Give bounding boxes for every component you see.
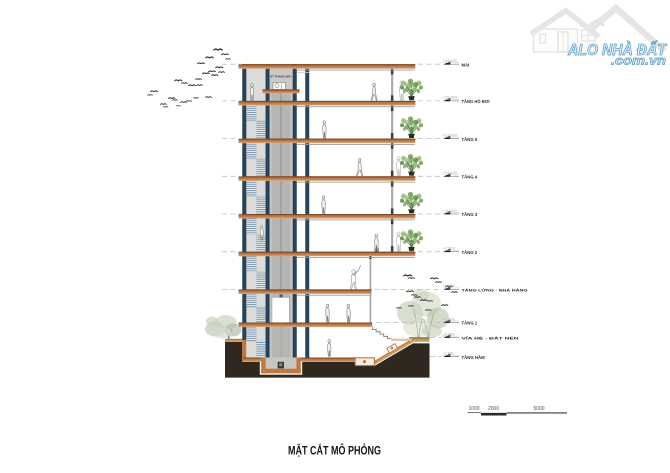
svg-text:TẦNG HỒ BƠI: TẦNG HỒ BƠI: [462, 99, 490, 104]
svg-text:MẶT CẮT MÔ PHỎNG: MẶT CẮT MÔ PHỎNG: [288, 445, 381, 458]
svg-text:5000: 5000: [533, 406, 544, 412]
svg-text:2000: 2000: [488, 406, 499, 412]
svg-text:+14.400: +14.400: [443, 170, 458, 175]
svg-text:VỈA HÈ - ĐẤT NỀN: VỈA HÈ - ĐẤT NỀN: [462, 336, 519, 341]
svg-text:TẦNG 2: TẦNG 2: [462, 250, 478, 255]
svg-text:±0.000: ±0.000: [443, 331, 456, 336]
svg-text:MÁI: MÁI: [462, 62, 470, 67]
svg-text:-1.700: -1.700: [443, 350, 455, 355]
svg-text:+20.900: +20.900: [443, 95, 458, 100]
svg-text:TẦNG 5: TẦNG 5: [462, 137, 478, 142]
svg-text:+1.000: +1.000: [443, 316, 456, 321]
svg-text:TẦNG HẦM: TẦNG HẦM: [462, 355, 486, 360]
svg-text:TẦNG 4: TẦNG 4: [462, 175, 478, 180]
svg-text:+24.200: +24.200: [443, 58, 458, 63]
svg-text:KT THANG MÁY: KT THANG MÁY: [270, 74, 292, 79]
svg-text:TẦNG 1: TẦNG 1: [462, 321, 478, 326]
svg-text:+4.500: +4.500: [443, 283, 456, 288]
svg-text:+17.700: +17.700: [443, 132, 458, 137]
svg-text:TẦNG LỬNG - NHÀ HÀNG: TẦNG LỬNG - NHÀ HÀNG: [462, 288, 528, 293]
svg-text:+11.100: +11.100: [443, 208, 458, 213]
svg-text:TẦNG 3: TẦNG 3: [462, 212, 478, 217]
svg-text:.com.vn: .com.vn: [611, 54, 666, 68]
svg-text:+7.800: +7.800: [443, 246, 456, 251]
svg-text:1000: 1000: [468, 406, 479, 412]
